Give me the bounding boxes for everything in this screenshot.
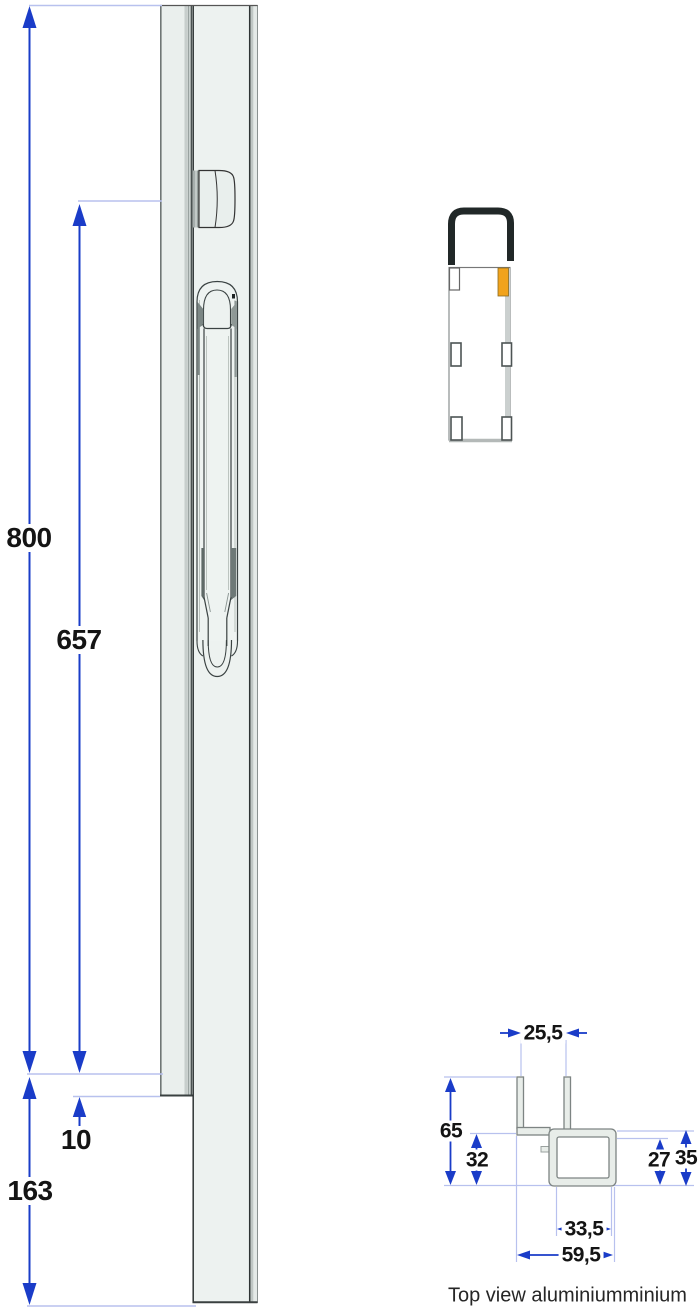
technical-drawing-canvas: 800 657 10 163 25,5 65 32 27 35 33,5 59,… — [0, 0, 700, 1312]
top-view-caption: Top view aluminiumminium — [448, 1285, 687, 1308]
dim-overall-height-label: 65 — [437, 1121, 465, 1142]
rod-clip-tick — [232, 294, 235, 299]
dim-offset-label: 10 — [58, 1126, 94, 1154]
dim-rod-length-label: 657 — [53, 626, 104, 654]
dim-tube-inner-height-label: 27 — [645, 1150, 673, 1171]
hook-profile — [452, 211, 511, 265]
dim-total-height-label: 800 — [3, 524, 54, 552]
handle-slot — [197, 282, 238, 677]
drawing-svg — [0, 0, 700, 1312]
latch-detail — [193, 171, 235, 228]
dim-bottom-section-label: 163 — [4, 1177, 55, 1205]
dim-inner-height-label: 32 — [463, 1150, 491, 1171]
lock-section-view — [449, 211, 512, 441]
orange-keeper-marker — [498, 268, 509, 296]
dim-overall-width-label: 59,5 — [559, 1245, 604, 1266]
dim-tube-inner-width-label: 33,5 — [562, 1219, 607, 1240]
dim-tube-outer-height-label: 35 — [672, 1148, 700, 1169]
dim-channel-width-label: 25,5 — [521, 1023, 566, 1044]
